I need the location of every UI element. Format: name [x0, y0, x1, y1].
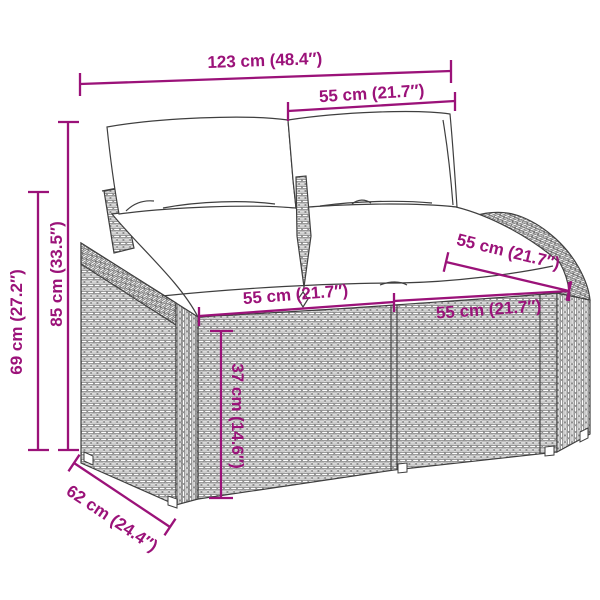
dimension-armrest-height [28, 192, 49, 450]
left-back-pillow [107, 117, 296, 214]
overall-width-label: 123 cm (48.4″) [207, 49, 323, 72]
total-height-label: 85 cm (33.5″) [47, 221, 66, 326]
sofa-dimension-svg: 123 cm (48.4″) 55 cm (21.7″) 85 cm (33.5… [0, 0, 600, 600]
right-back-pillow [288, 112, 457, 208]
seat-height-label: 37 cm (14.6″) [228, 363, 247, 468]
base-right-face [557, 293, 590, 452]
dimension-diagram: 123 cm (48.4″) 55 cm (21.7″) 85 cm (33.5… [0, 0, 600, 600]
back-cushion-width-label: 55 cm (21.7″) [318, 81, 424, 106]
base-front-face [198, 293, 557, 499]
left-armrest-block [81, 243, 176, 505]
front-left-corner-post [176, 303, 198, 505]
armrest-height-label: 69 cm (27.2″) [7, 269, 26, 374]
